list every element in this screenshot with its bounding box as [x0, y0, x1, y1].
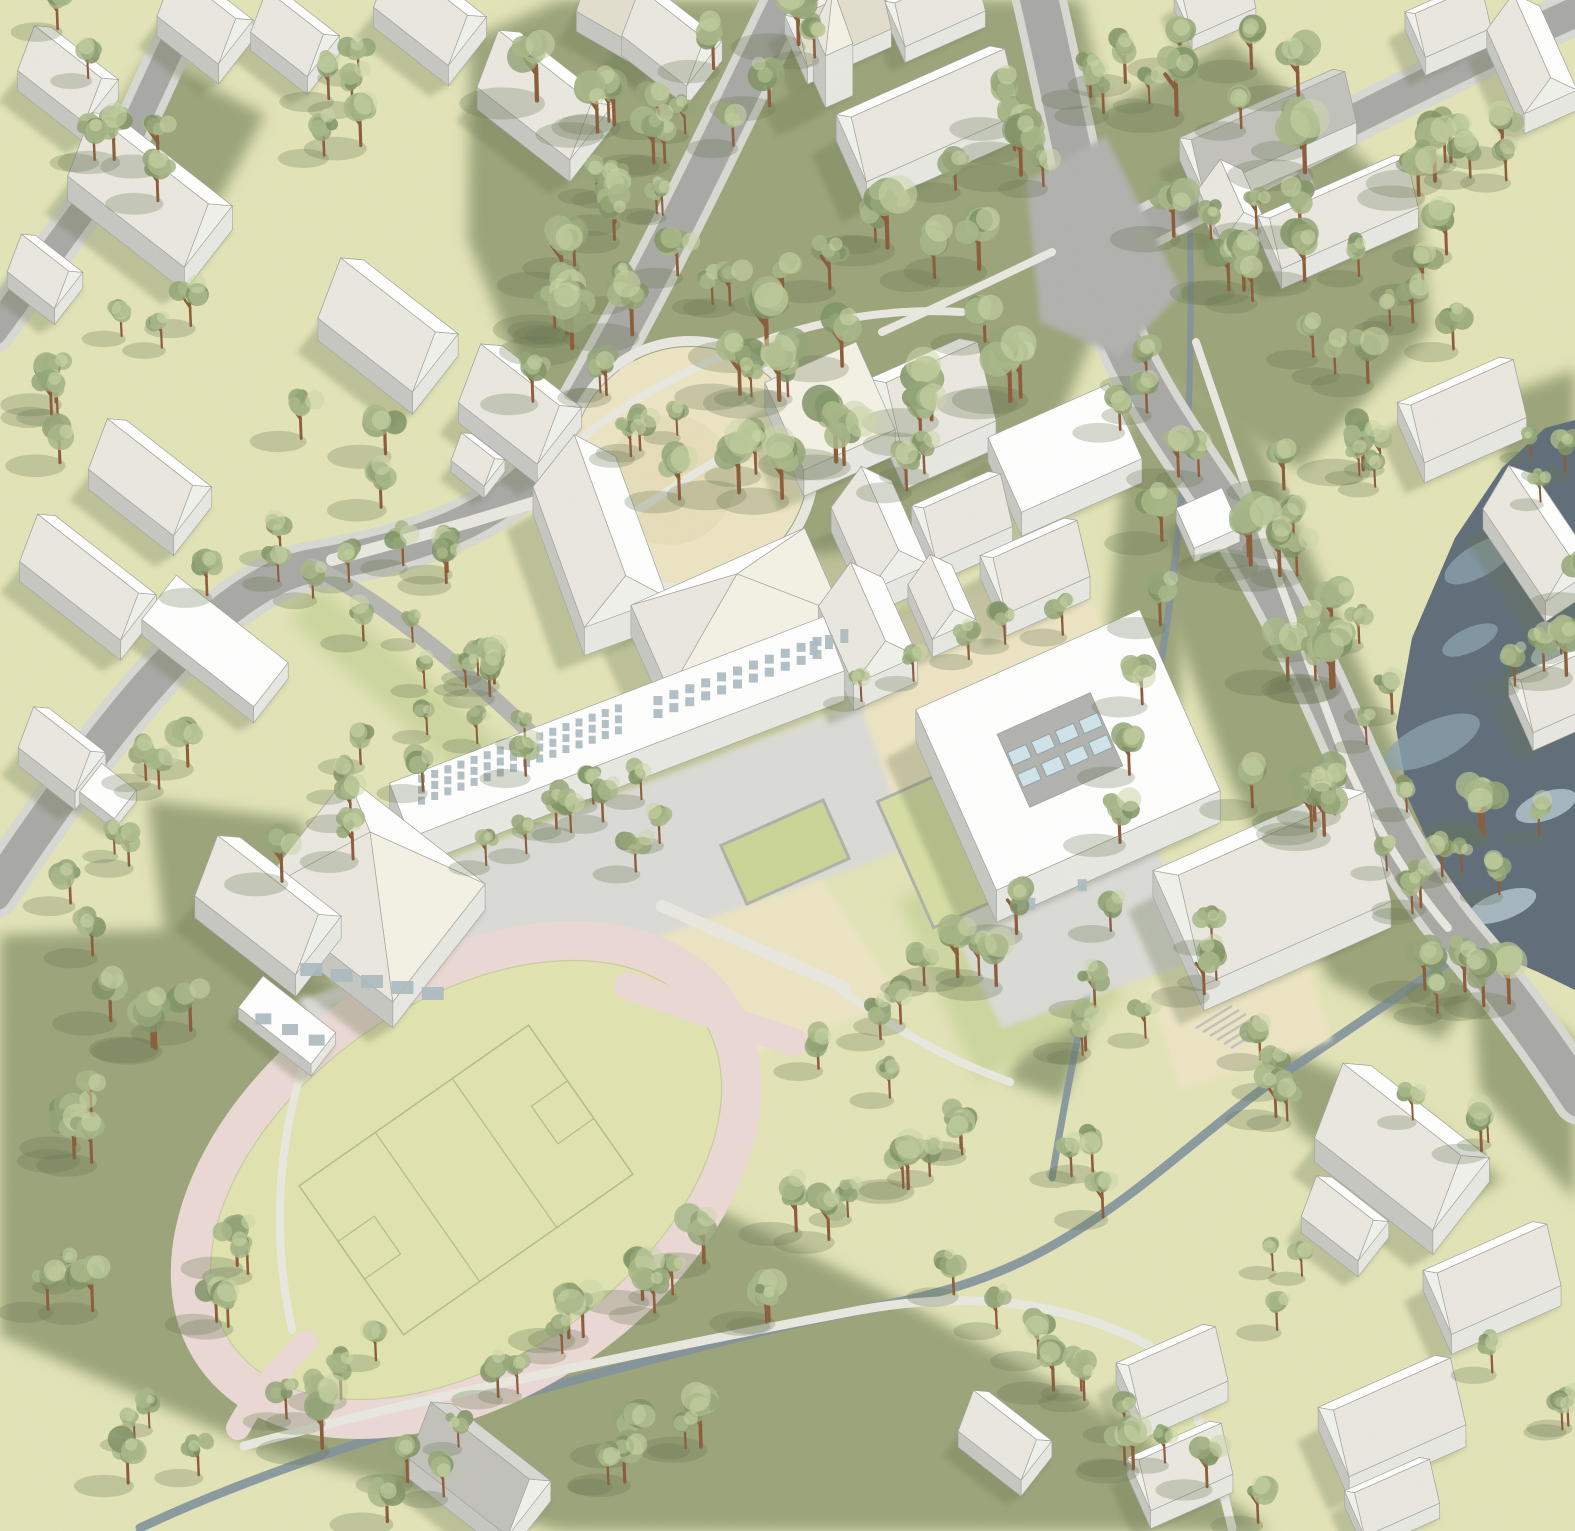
- paper-grain-overlay: [0, 0, 1575, 1531]
- aerial-site-plan: [0, 0, 1575, 1531]
- site-plan-rendering: [0, 0, 1575, 1531]
